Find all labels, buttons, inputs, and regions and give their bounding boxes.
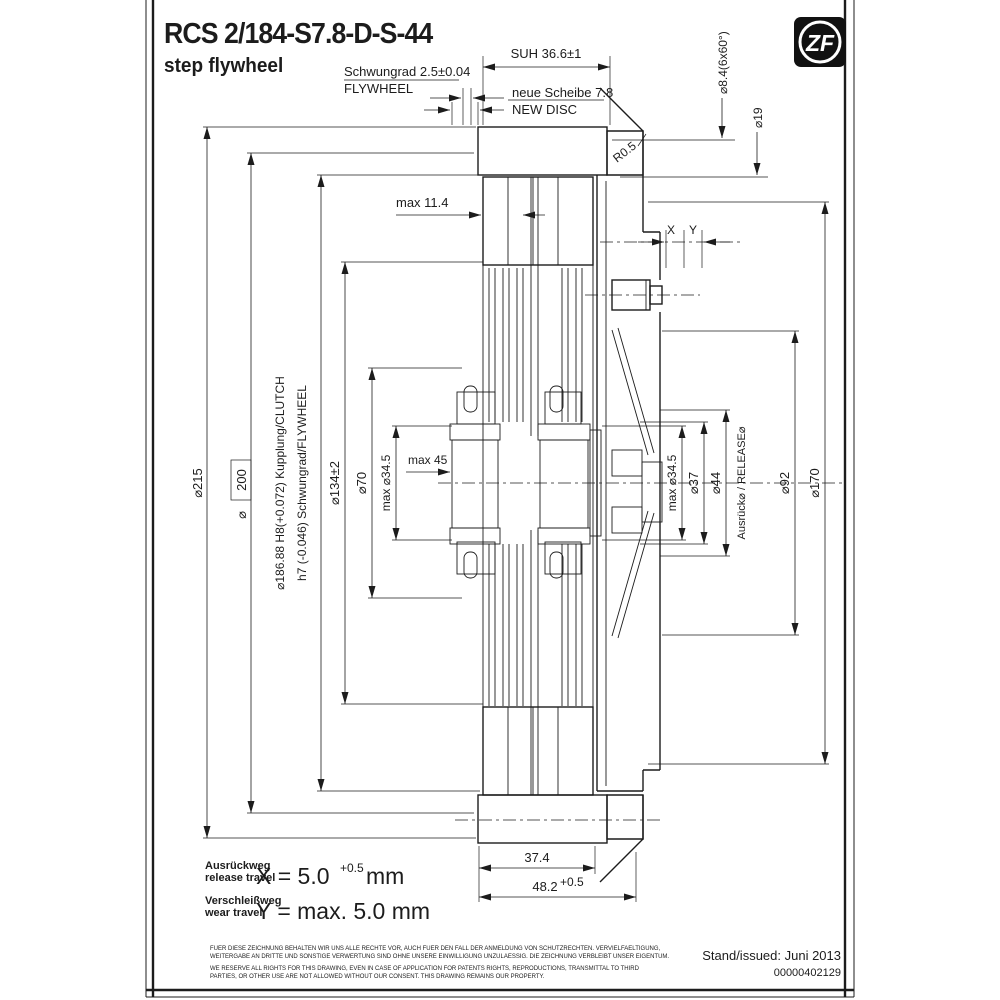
dim-schwungrad: Schwungrad 2.5±0.04 FLYWHEEL xyxy=(344,64,504,125)
dim-neue-scheibe-label: neue Scheibe 7.8 xyxy=(512,85,613,100)
technical-drawing: RCS 2/184-S7.8-D-S-44 step flywheel ZF xyxy=(0,0,1000,1000)
footer-doc-number: 00000402129 xyxy=(774,967,841,979)
note-release-travel: Ausrückweg release travel X = 5.0 +0.5 m… xyxy=(205,860,404,889)
dim-xy: X Y xyxy=(638,223,730,268)
dim-374-label: 37.4 xyxy=(524,850,549,865)
dim-d200: ⌀ 200 xyxy=(231,153,474,813)
dim-d19-label: ⌀19 xyxy=(751,107,765,128)
part-drive-plates xyxy=(483,177,593,795)
dim-d19: ⌀19 xyxy=(620,107,768,177)
dim-x-label: X xyxy=(667,223,675,237)
dim-max45-label: max 45 xyxy=(408,453,448,467)
dim-new-disc: neue Scheibe 7.8 NEW DISC xyxy=(424,85,613,125)
part-flywheel-bottom xyxy=(478,795,643,882)
dim-y-label: Y xyxy=(689,223,697,237)
dim-max114-label: max 11.4 xyxy=(396,195,449,210)
legal-en-line1: WE RESERVE ALL RIGHTS FOR THIS DRAWING, … xyxy=(210,966,640,972)
dim-d215-label: ⌀215 xyxy=(190,468,205,498)
drawing-sheet: RCS 2/184-S7.8-D-S-44 step flywheel ZF xyxy=(0,0,1000,1000)
footer-issued-block: Stand/issued: Juni 2013 00000402129 xyxy=(702,948,841,979)
centerlines xyxy=(438,242,843,820)
dim-r05: R0.5 xyxy=(610,134,646,165)
dim-new-disc-label: NEW DISC xyxy=(512,102,577,117)
legal-de-line1: FUER DIESE ZEICHNUNG BEHALTEN WIR UNS AL… xyxy=(210,946,661,952)
dim-d70-label: ⌀70 xyxy=(354,472,369,494)
legal-en-line2: PARTIES, OR OTHER USE ARE NOT ALLOWED WI… xyxy=(210,974,545,980)
part-hub-left xyxy=(450,386,500,578)
dim-h7-label: h7 (-0.046) Schwungrad/FLYWHEEL xyxy=(295,385,309,581)
dim-d200-phi: ⌀ xyxy=(234,511,249,519)
footer-issued: Stand/issued: Juni 2013 xyxy=(702,948,841,963)
dim-d44-label: ⌀44 xyxy=(708,472,723,494)
dim-holes-label: ⌀8.4(6x60°) xyxy=(716,31,730,94)
zf-logo-text: ZF xyxy=(805,30,835,56)
dim-d345-right-label: max ⌀34.5 xyxy=(665,454,679,511)
drawing-code: RCS 2/184-S7.8-D-S-44 xyxy=(164,17,434,49)
dim-d186-label: ⌀186.88 H8(+0.072) Kupplung/CLUTCH xyxy=(273,376,287,590)
dim-holes: ⌀8.4(6x60°) xyxy=(612,31,735,140)
dim-r05-label: R0.5 xyxy=(610,139,639,166)
zf-logo: ZF xyxy=(794,17,846,67)
dim-d134-label: ⌀134±2 xyxy=(327,461,342,505)
dim-d170-label: ⌀170 xyxy=(807,468,822,498)
dim-max45: max 45 xyxy=(406,453,450,472)
legal-de-line2: WEITERGABE AN DRITTE UND SONSTIGE VERWER… xyxy=(210,954,669,960)
dim-d200-label: 200 xyxy=(234,469,249,491)
dim-schwungrad-label: Schwungrad 2.5±0.04 xyxy=(344,64,470,79)
dim-release-label: Ausrück⌀ / RELEASE⌀ xyxy=(736,426,748,539)
footer-legal: FUER DIESE ZEICHNUNG BEHALTEN WIR UNS AL… xyxy=(210,946,669,980)
note-y-eq: Y = max. 5.0 mm xyxy=(256,898,430,924)
note-x-eq: X = 5.0 xyxy=(256,863,330,889)
note-x-tol: +0.5 xyxy=(340,861,364,875)
dim-482: 48.2 +0.5 xyxy=(479,852,636,902)
dim-suh-label: SUH 36.6±1 xyxy=(511,46,582,61)
note-wear-travel: Verschleißweg wear travel Y = max. 5.0 m… xyxy=(204,895,430,924)
dim-482-tol: +0.5 xyxy=(560,875,584,889)
note-wear-en: wear travel xyxy=(204,907,262,919)
dim-d345-left-label: max ⌀34.5 xyxy=(379,454,393,511)
dim-d37-label: ⌀37 xyxy=(686,472,701,494)
dim-d92-label: ⌀92 xyxy=(777,472,792,494)
dim-max114: max 11.4 xyxy=(396,195,545,215)
dim-d134: ⌀134±2 xyxy=(327,262,483,704)
dim-482-label: 48.2 xyxy=(532,879,557,894)
note-x-unit: mm xyxy=(366,863,404,889)
drawing-subtitle: step flywheel xyxy=(164,55,283,78)
dim-flywheel-label: FLYWHEEL xyxy=(344,81,413,96)
